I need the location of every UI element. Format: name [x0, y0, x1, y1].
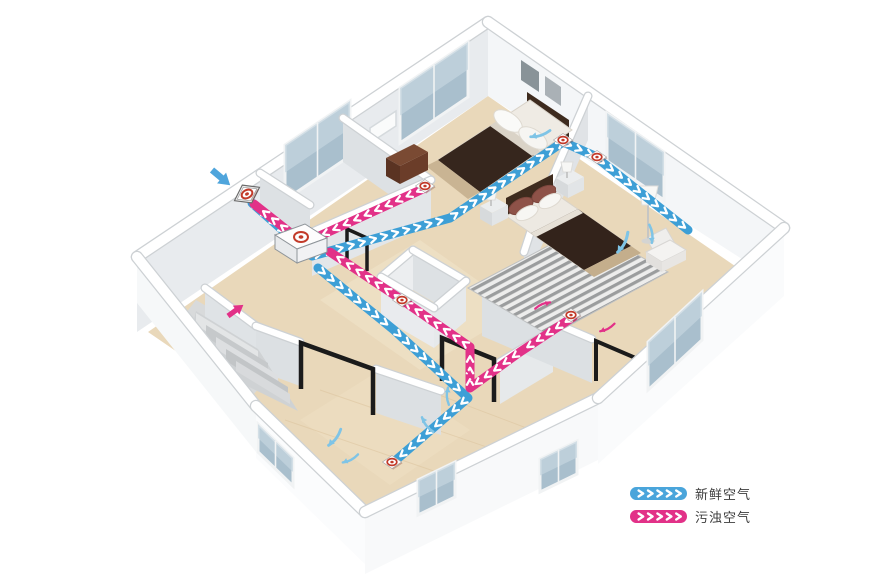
legend-item-stale-air: 污浊空气: [630, 509, 751, 524]
legend-label: 新鲜空气: [695, 484, 751, 503]
legend-item-fresh-air: 新鲜空气: [630, 486, 751, 501]
outdoor-fresh-arrow: [208, 165, 235, 191]
ventilation-diagram: 新鲜空气 污浊空气: [0, 0, 882, 575]
legend-label: 污浊空气: [695, 507, 751, 526]
legend: 新鲜空气 污浊空气: [630, 486, 751, 524]
fresh-air-arrow-icon: [630, 486, 688, 501]
stale-air-arrow-icon: [630, 509, 688, 524]
